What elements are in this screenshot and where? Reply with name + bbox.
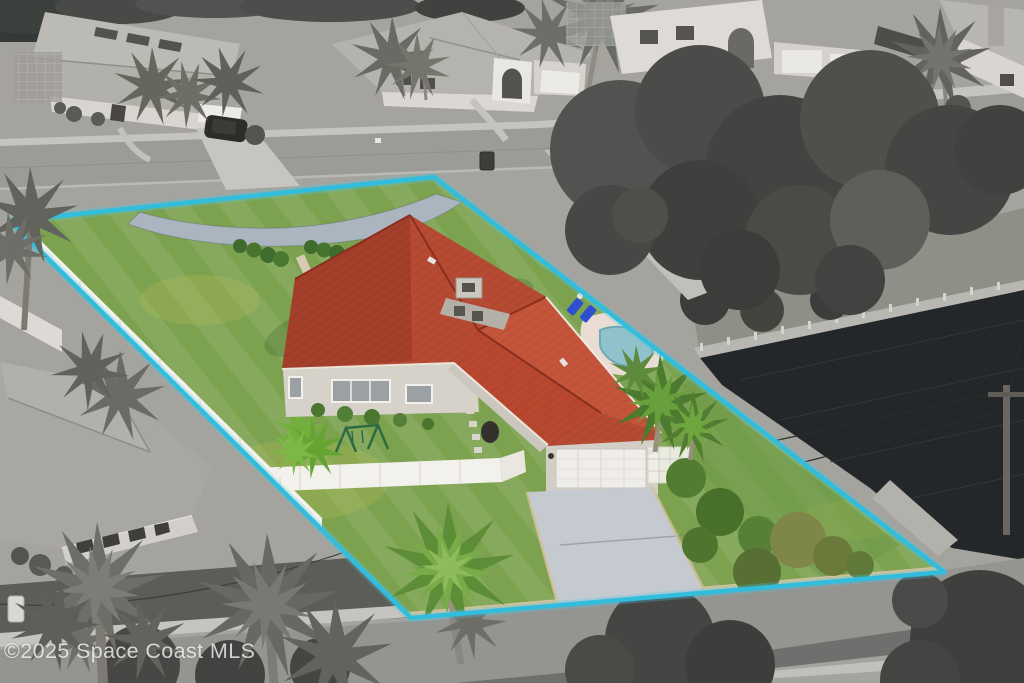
trash-bin <box>480 152 494 170</box>
garage-door <box>556 449 646 488</box>
aerial-photo <box>0 0 1024 683</box>
garage-door <box>782 50 822 73</box>
stone-chimney <box>988 2 1004 46</box>
garage-door <box>540 70 580 94</box>
porch-lamp <box>548 453 554 459</box>
mls-watermark: ©2025 Space Coast MLS <box>4 639 255 664</box>
listing-photo: ©2025 Space Coast MLS <box>0 0 1024 683</box>
covered-grill <box>481 421 499 443</box>
utility-pedestal <box>8 596 24 622</box>
chimney <box>456 278 482 298</box>
front-door <box>110 104 126 122</box>
mailbox <box>375 138 381 143</box>
